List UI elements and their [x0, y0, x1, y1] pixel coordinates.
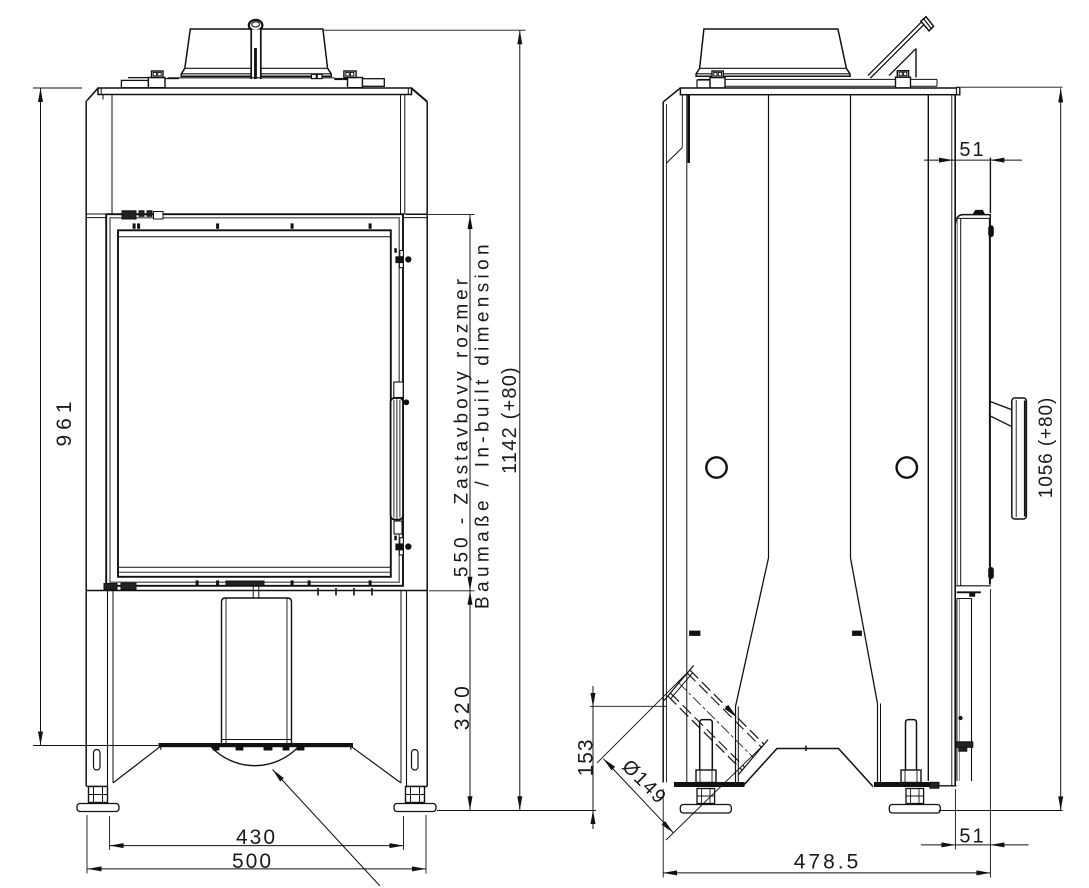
svg-text:1056 (+80): 1056 (+80) — [1036, 397, 1057, 498]
svg-text:51: 51 — [959, 826, 985, 848]
svg-text:320: 320 — [451, 682, 474, 731]
svg-text:478.5: 478.5 — [794, 851, 862, 874]
svg-text:Baumaße / In-built dimension: Baumaße / In-built dimension — [473, 240, 494, 609]
svg-text:51: 51 — [959, 139, 985, 161]
svg-text:430: 430 — [236, 826, 277, 849]
svg-text:500: 500 — [232, 850, 273, 873]
svg-text:1142 (+80): 1142 (+80) — [499, 366, 521, 474]
svg-text:961: 961 — [53, 396, 76, 446]
svg-text:550 - Zastavbovy rozmer: 550 - Zastavbovy rozmer — [452, 275, 473, 577]
svg-text:153: 153 — [575, 738, 598, 776]
